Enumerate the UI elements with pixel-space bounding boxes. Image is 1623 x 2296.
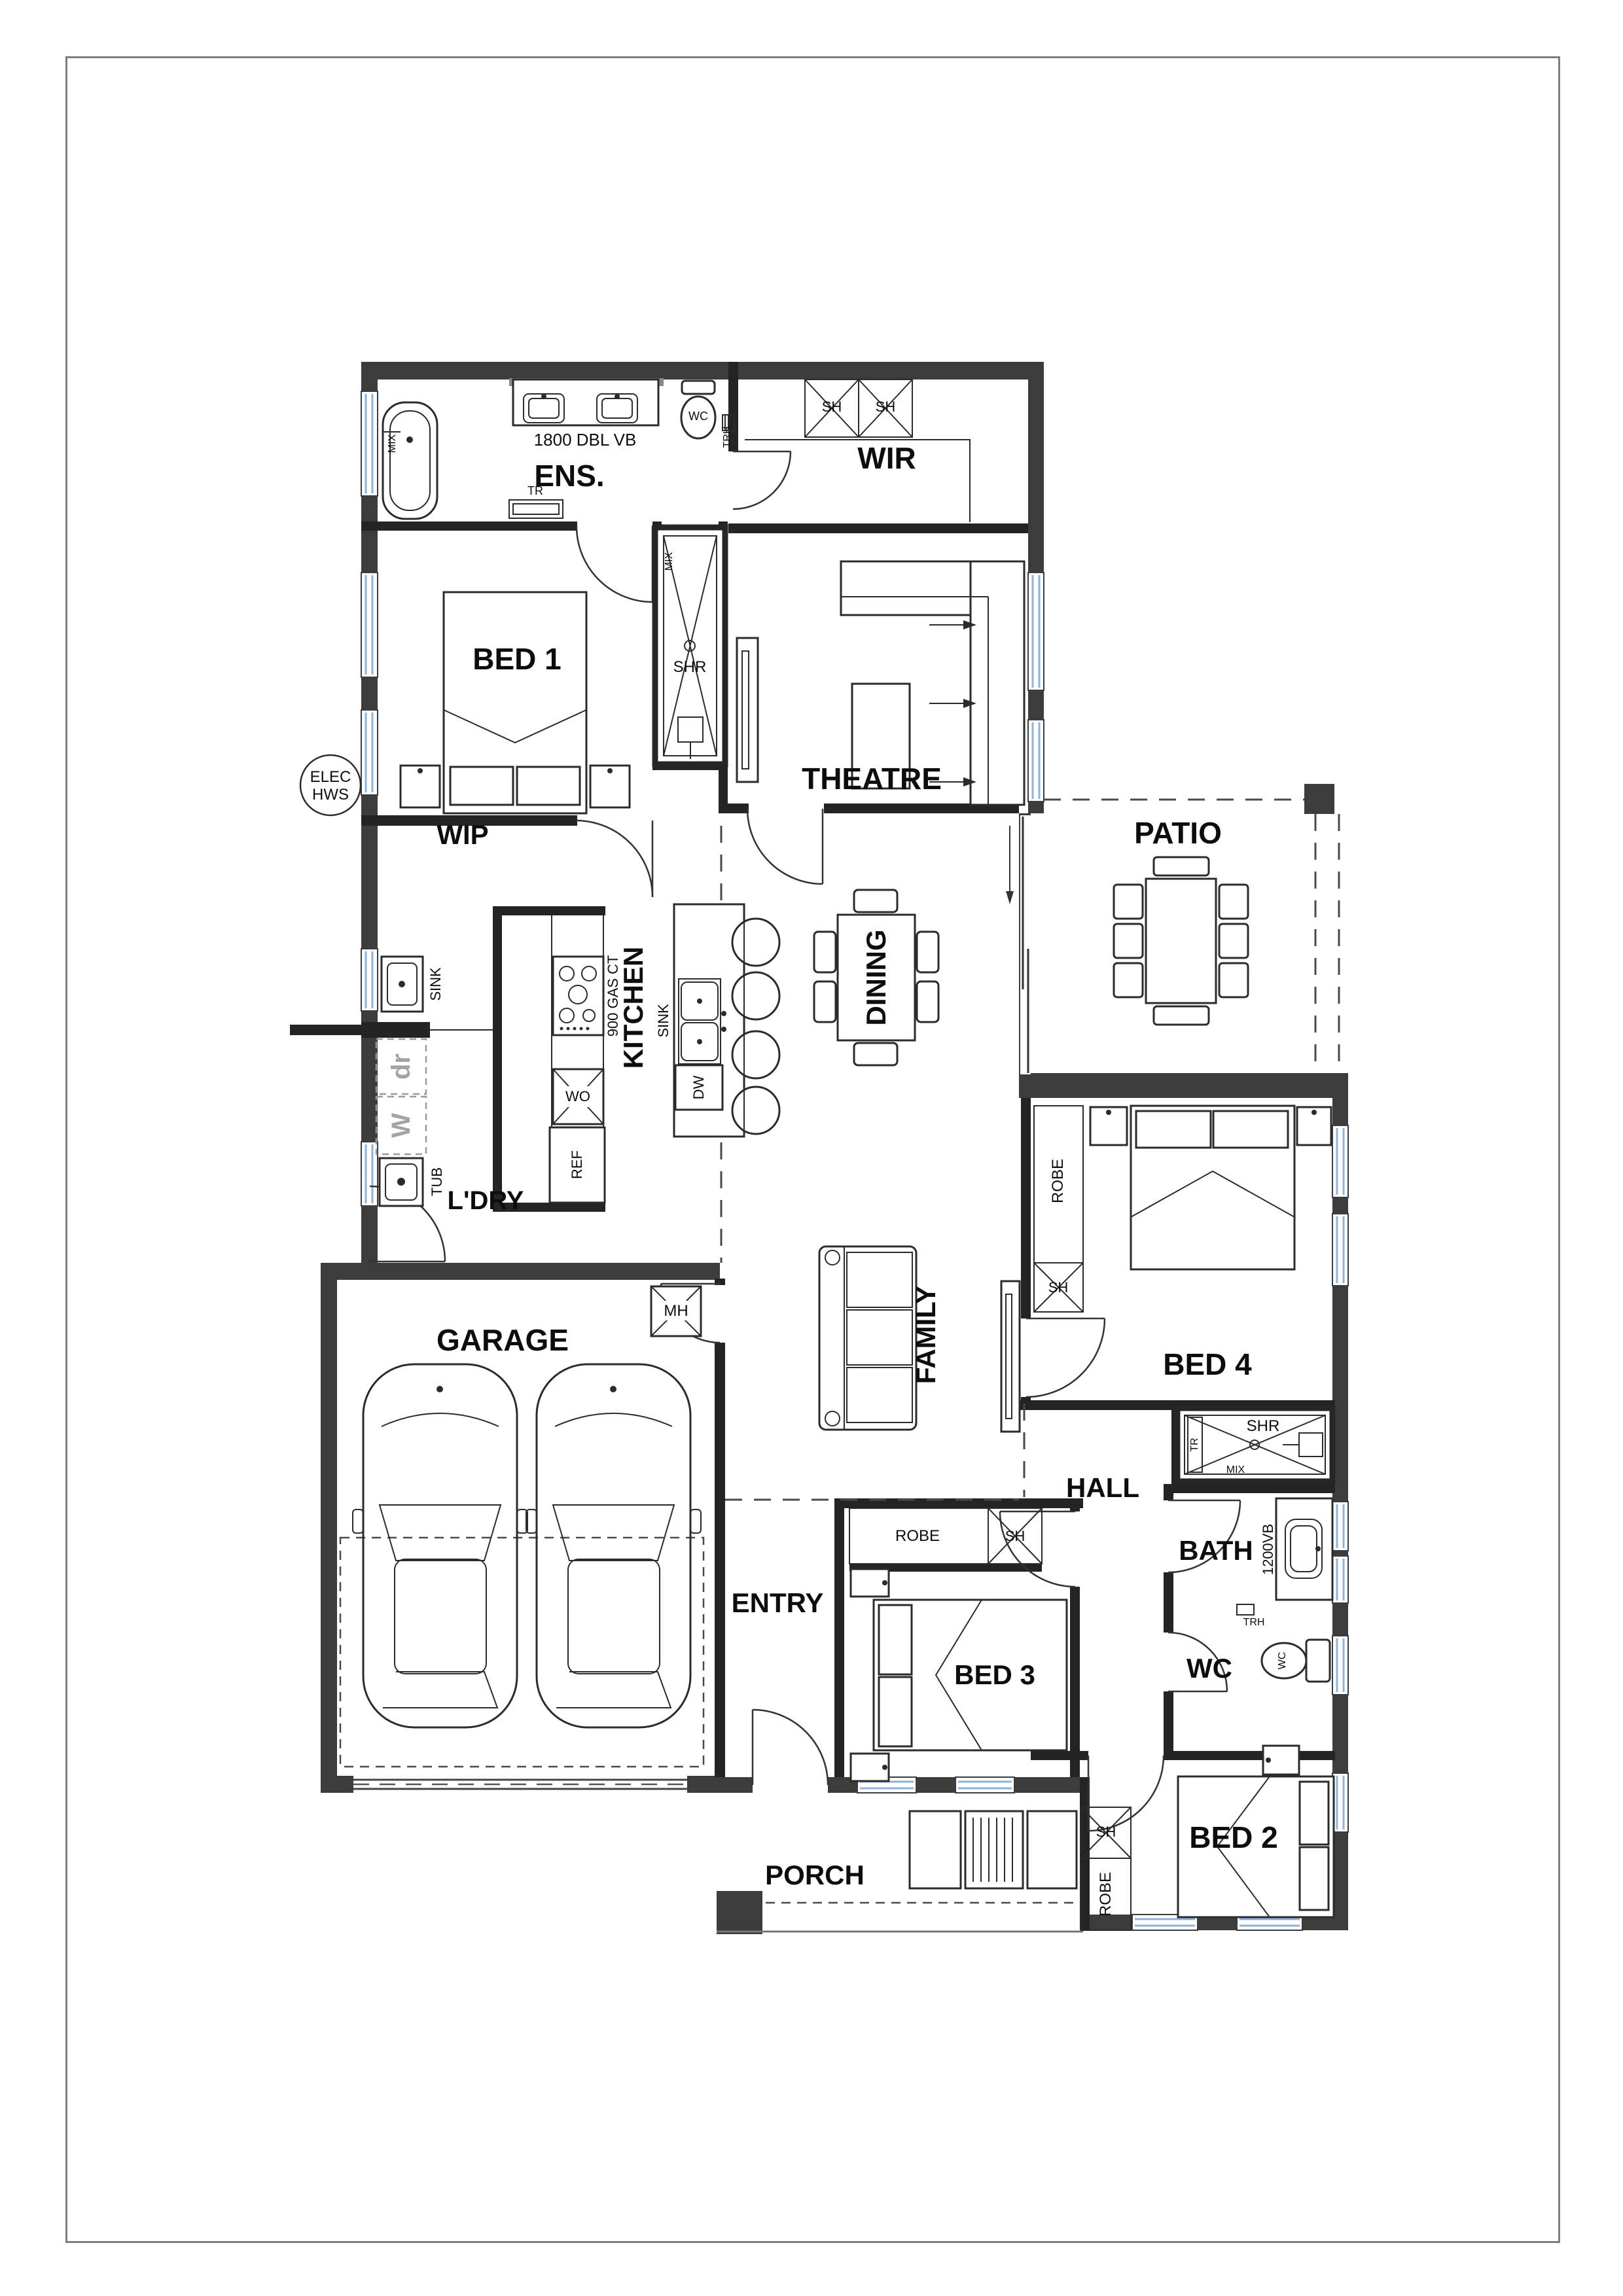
door-hall-bed4 [1026, 1318, 1105, 1397]
door-dining-theatre [747, 809, 823, 884]
fixture-label-sink-island: SINK [656, 1004, 671, 1037]
room-label-bed4: BED 4 [1163, 1349, 1251, 1379]
room-label-dining: DINING [863, 930, 890, 1026]
window [361, 391, 378, 496]
window [361, 573, 378, 677]
fixture-label-sh-bed2: SH [1096, 1825, 1116, 1839]
family-sofa [819, 1246, 916, 1430]
bathtub [383, 402, 437, 519]
bed4-bed [1090, 1106, 1331, 1269]
window [955, 1777, 1014, 1793]
fixture-label-mix-tub: MIX [387, 434, 398, 453]
fixture-label-trh-ens: TRH [722, 427, 733, 448]
room-label-garage: GARAGE [437, 1325, 569, 1355]
room-label-bed3: BED 3 [954, 1661, 1035, 1689]
window [1332, 1125, 1348, 1197]
fixture-label-tub-ldry: TUB [430, 1167, 444, 1196]
porch-bench [910, 1811, 1077, 1888]
window [1028, 720, 1044, 802]
window [1332, 1502, 1348, 1551]
window [1332, 1214, 1348, 1286]
fixture-label-trh-wc: TRH [1243, 1617, 1265, 1628]
fixture-label-washer: W [388, 1113, 414, 1138]
room-label-bath: BATH [1179, 1537, 1253, 1564]
fixture-label-sh-bed4: SH [1048, 1280, 1069, 1295]
window [361, 710, 378, 795]
fixture-label-mix-bath: MIX [1226, 1465, 1245, 1475]
room-label-ldry: L'DRY [448, 1188, 524, 1214]
family-tv [1001, 1281, 1020, 1432]
window [1332, 1556, 1348, 1603]
bed1-bed [401, 592, 630, 813]
window [1332, 1636, 1348, 1695]
fixture-label-sh-wir-2: SH [876, 400, 896, 414]
window [361, 949, 378, 1011]
fixture-label-robe-bed2: ROBE [1098, 1872, 1114, 1916]
annotation-ens-vanity: 1800 DBL VB [534, 431, 637, 448]
annotation-elec: ELEC [310, 769, 351, 785]
fixture-label-sh-bed3: SH [1005, 1529, 1026, 1544]
fixture-label-sink-wip: SINK [429, 967, 443, 1000]
cooktop [553, 957, 603, 1035]
door-ens-wir [733, 451, 791, 509]
room-label-wip: WIP [437, 821, 488, 849]
room-label-bed1: BED 1 [473, 644, 561, 674]
door-hall-bed2 [1088, 1756, 1164, 1831]
room-label-entry: ENTRY [732, 1589, 824, 1617]
room-label-family: FAMILY [912, 1286, 940, 1384]
fixture-label-ref: REF [570, 1150, 584, 1179]
slider-arrow [1006, 826, 1014, 904]
annotation-hws: HWS [312, 787, 349, 803]
fixture-label-shr-bath: SHR [1247, 1419, 1280, 1434]
room-label-porch: PORCH [765, 1862, 865, 1889]
fixture-label-sh-wir-1: SH [822, 400, 842, 414]
floor-plan-drawing [0, 0, 1623, 2296]
fixture-label-shr-ens: SHR [673, 660, 707, 675]
ens-vanity [509, 378, 664, 425]
floor-plan-page: ENS. 1800 DBL VB WIR SH SH WC TRH TR MIX… [0, 0, 1623, 2296]
theatre-tv [737, 638, 758, 782]
fixture-label-robe-bed4: ROBE [1050, 1159, 1066, 1203]
fixture-label-dryer: dr [388, 1053, 414, 1080]
laundry-tub [380, 1158, 423, 1206]
door-hall-bed3 [1000, 1511, 1075, 1587]
room-label-theatre: THEATRE [802, 764, 942, 794]
annotation-cooktop: 900 GAS CT [606, 955, 620, 1037]
fixture-label-mix-ens-shr: MIX [664, 552, 675, 571]
fixture-label-mh: MH [664, 1303, 688, 1319]
room-label-ens: ENS. [534, 461, 604, 491]
fixture-label-tr-bath: TR [1190, 1438, 1200, 1451]
fixture-label-tr-ens: TR [527, 485, 543, 497]
fixture-label-wc-pan-ens: WC [688, 410, 708, 422]
window [1332, 1773, 1348, 1832]
room-label-hall: HALL [1066, 1474, 1139, 1502]
garage-cars [353, 1364, 701, 1727]
fixture-label-wo: WO [565, 1089, 590, 1104]
wc-toilet [1237, 1604, 1330, 1682]
room-label-wir: WIR [857, 443, 916, 473]
fixture-label-robe-bed3: ROBE [895, 1528, 940, 1544]
bath-vanity [1276, 1498, 1332, 1600]
room-label-patio: PATIO [1134, 818, 1222, 848]
fixture-label-wc-pan-wc: WC [1277, 1652, 1288, 1670]
annotation-bath-vanity: 1200VB [1261, 1524, 1275, 1575]
ens-towel-rail [509, 500, 563, 518]
room-label-kitchen: KITCHEN [620, 947, 647, 1069]
window [361, 1142, 378, 1206]
door-bed1-wip [576, 821, 652, 897]
patio-table [1114, 857, 1248, 1025]
fixture-label-dw: DW [692, 1076, 706, 1100]
door-ens-bed1 [577, 526, 652, 602]
window [1028, 573, 1044, 690]
door-front-entry [753, 1710, 828, 1785]
room-label-bed2: BED 2 [1189, 1822, 1277, 1852]
room-label-wc: WC [1186, 1655, 1232, 1682]
